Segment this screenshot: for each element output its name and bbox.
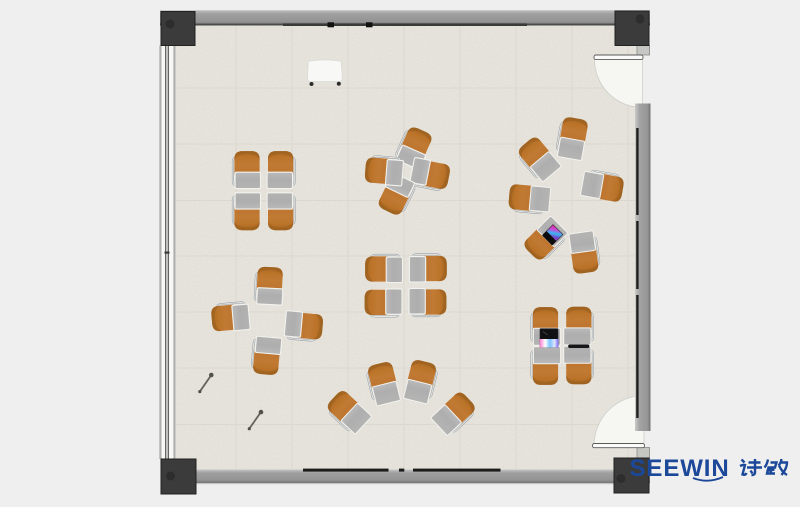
svg-text:SEEWIN: SEEWIN [630,455,730,482]
